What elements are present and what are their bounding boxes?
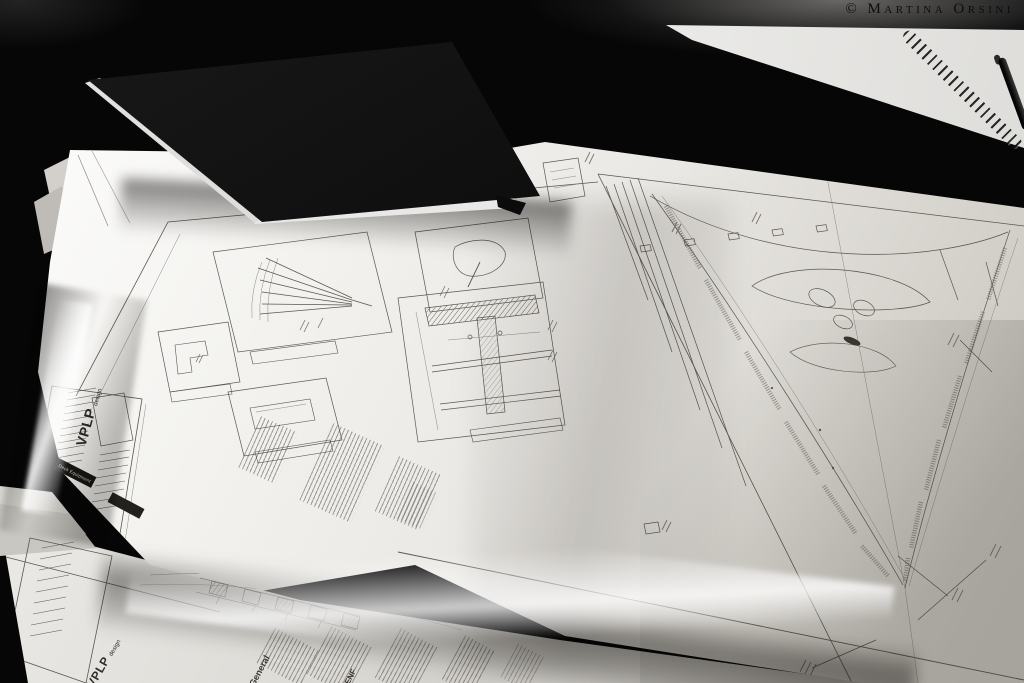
notebook-pages-edge: [0, 0, 1024, 683]
sheet-cast-shadow: [94, 491, 926, 683]
drawing-title-label: Deck Equipment: [54, 458, 97, 488]
detail-box-fan-laminate: [213, 232, 392, 364]
vplp-logo-main: VPLP design: [73, 386, 105, 448]
spiral-notebook: [0, 0, 1024, 683]
boat-deck-plan: [398, 152, 1024, 683]
paper-sag-shadow: [470, 200, 730, 670]
sheet-corner-flap: [0, 0, 1024, 683]
notes-block: [299, 423, 384, 523]
curled-edge-highlight: [126, 494, 895, 683]
notes-block-under: [500, 643, 545, 683]
notebook-pages-edge: [0, 0, 1024, 683]
sheet-corner-flap: [0, 0, 1024, 683]
detail-box-section: [398, 282, 565, 442]
materials-legend: [196, 578, 360, 630]
main-sheet-linework: [30, 151, 1024, 683]
paper-shade-right: [640, 320, 1024, 683]
black-notebook: [0, 0, 1024, 683]
brand-name: VPLP: [84, 654, 113, 683]
notes-block-under: [442, 635, 496, 683]
photo-stage: VPLP design Deck Equipment VPLP design G…: [0, 0, 1024, 683]
brand-sub: design: [108, 639, 122, 657]
vplp-logo-under: VPLP design: [84, 636, 123, 683]
sheet-corner-flap: [0, 0, 1024, 683]
sheet-corner-flap: [0, 0, 1024, 683]
detail-box-bracket: [158, 322, 240, 402]
detail-box-pad: [415, 218, 543, 312]
detail-box-top: [543, 158, 585, 202]
brand-sub: design: [93, 388, 104, 407]
notes-block-under: [375, 628, 437, 683]
spiral-binding: [900, 28, 1024, 152]
drawing-title-label-under: [108, 492, 145, 519]
notebook-elastic: [0, 0, 1024, 683]
blueprint-linework: [0, 0, 1024, 683]
blueprint-sheet-under: [0, 0, 1024, 683]
blueprint-sheet-main: [0, 0, 1024, 683]
table-sheen-mid: [0, 0, 1024, 683]
notes-block: [238, 416, 297, 483]
table-sheen-top-left: [0, 0, 1024, 683]
notebook-cast-shadow: [118, 178, 571, 271]
table-sheen-top-right: [0, 0, 1024, 683]
notes-block-under: [306, 626, 371, 683]
brand-name: VPLP: [73, 407, 99, 448]
photographer-watermark: © Martina Orsini: [845, 1, 1014, 18]
